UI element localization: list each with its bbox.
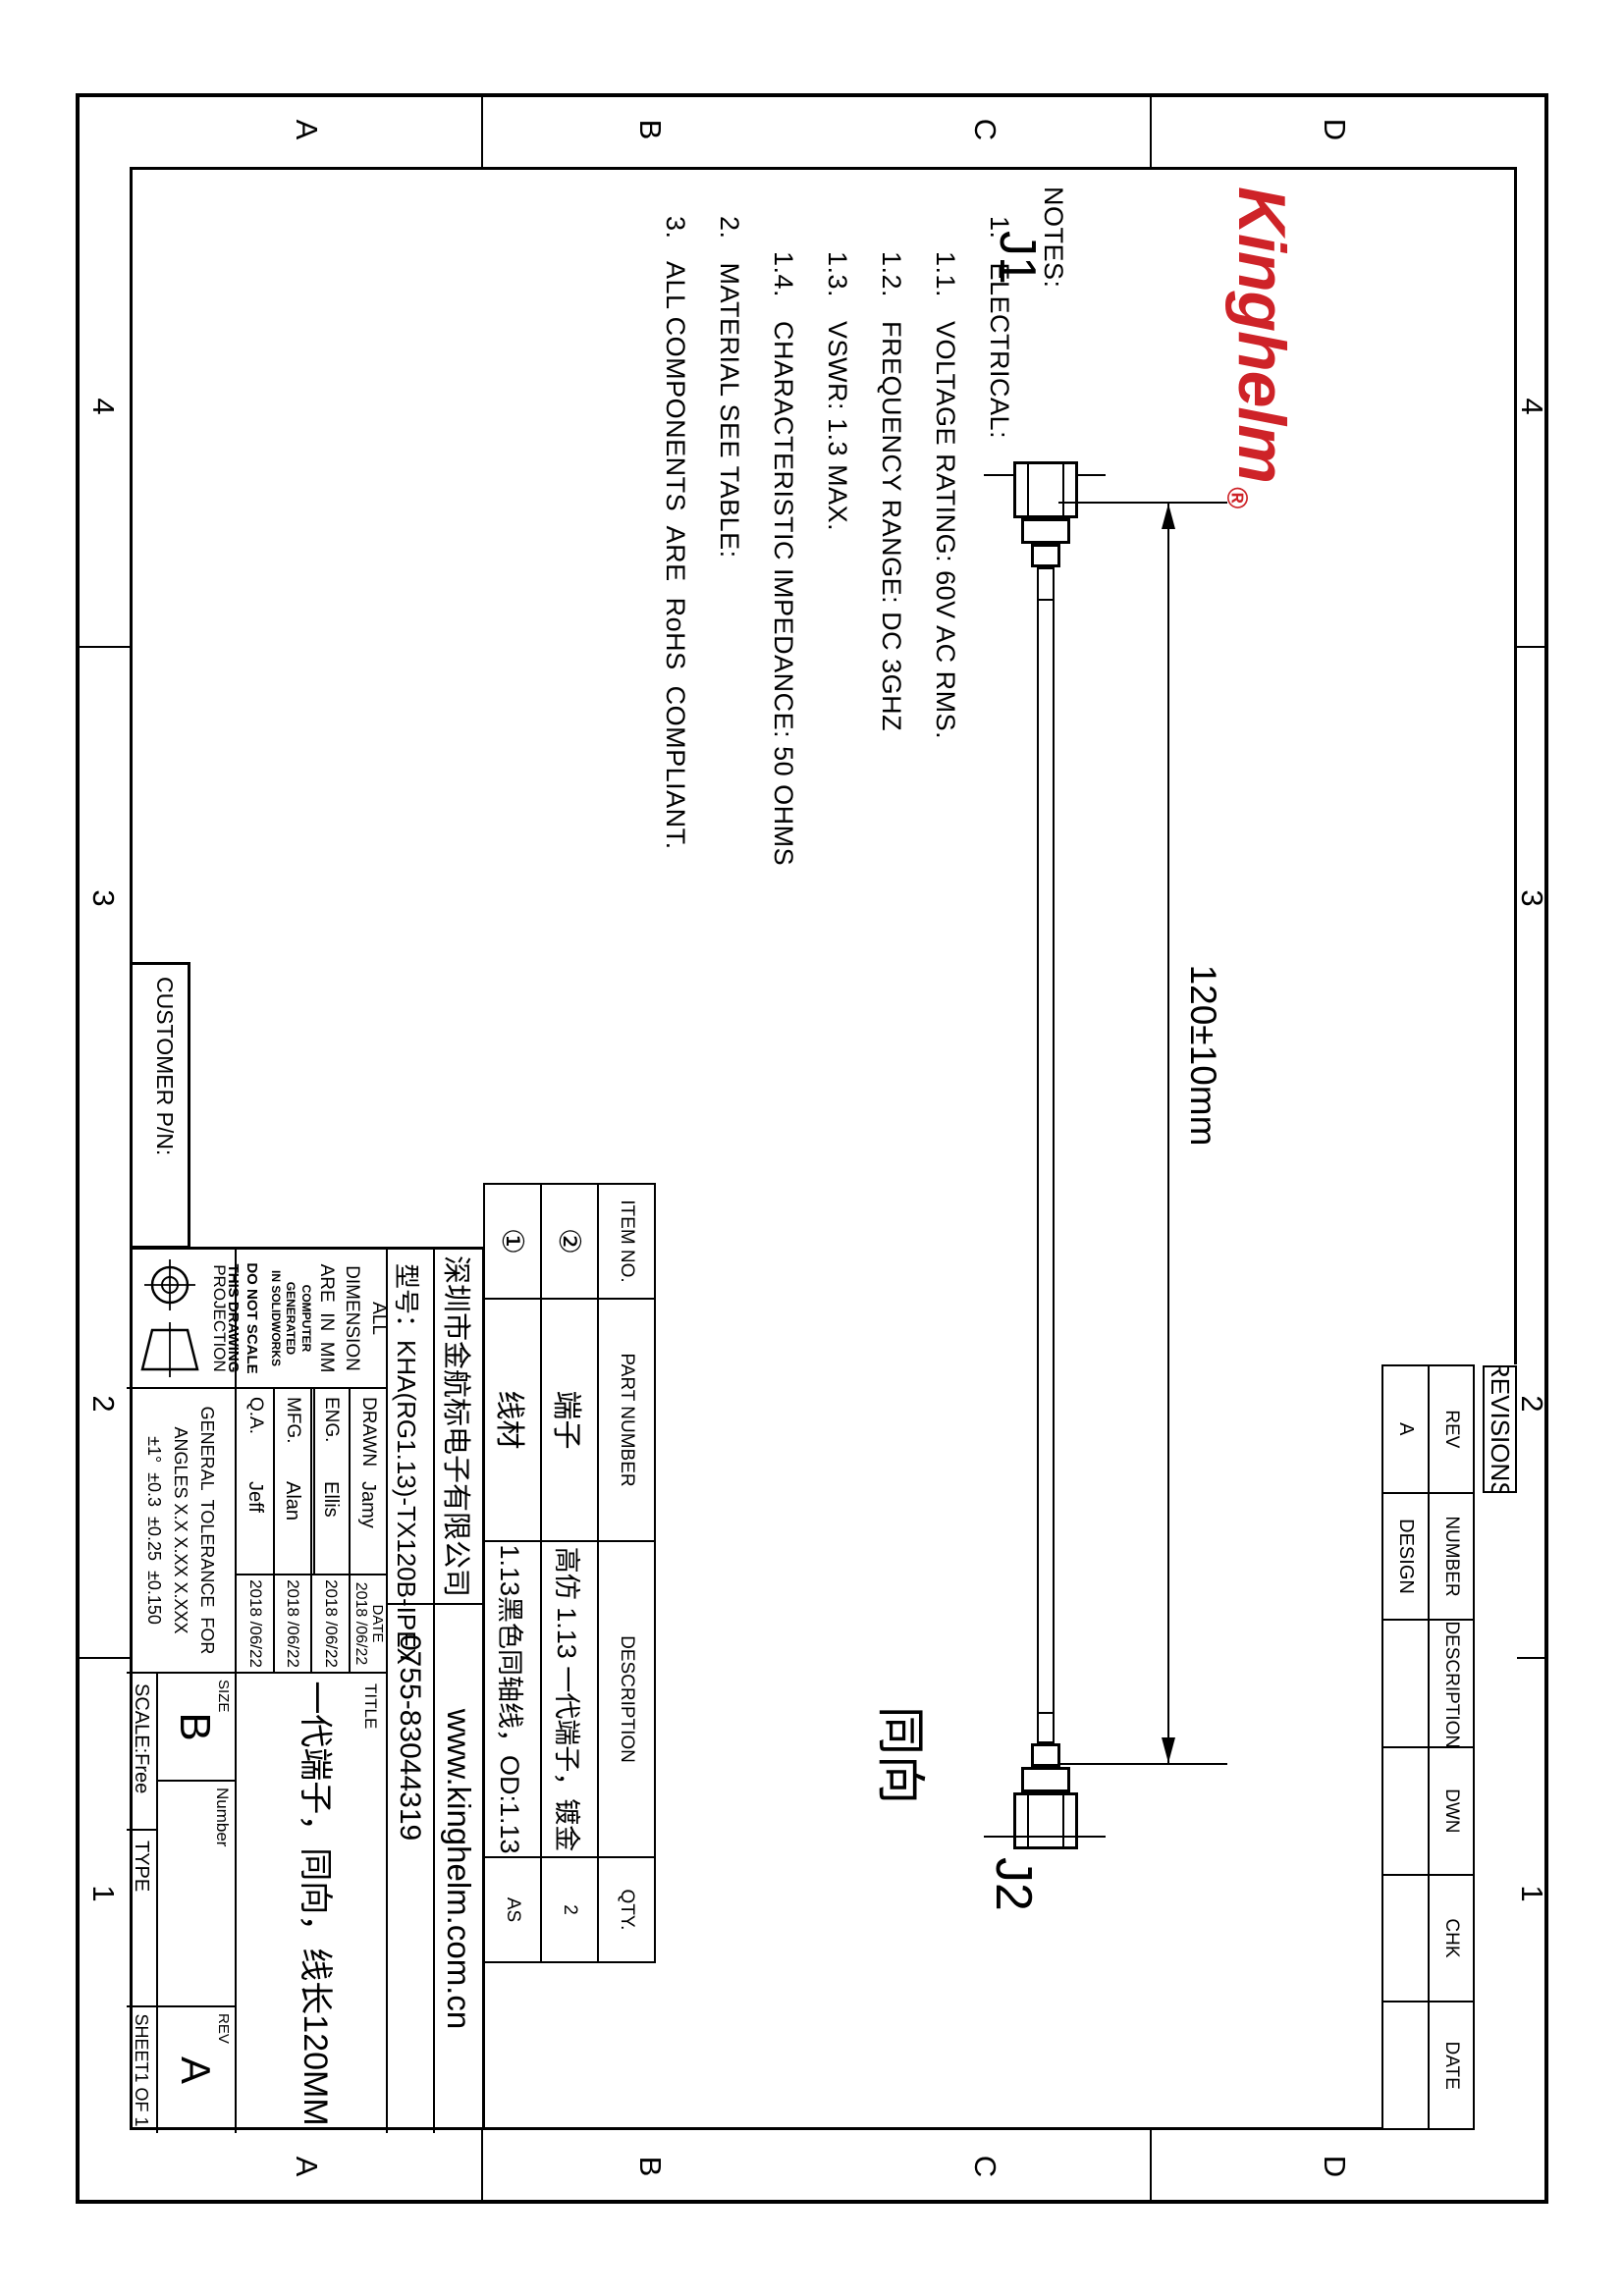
j1-connector-head xyxy=(1013,461,1078,518)
zone-number-bottom: 3 xyxy=(83,869,123,928)
connector-j2-label: J2 xyxy=(984,1857,1043,1911)
company-website: www.kinghelm.com.cn xyxy=(435,1605,482,2133)
zone-number-bottom: 1 xyxy=(83,1864,123,1923)
customer-pn-box: CUSTOMER P/N: xyxy=(130,962,190,1249)
j2-connector-head xyxy=(1013,1792,1078,1849)
revisions-header-number: NUMBER xyxy=(1429,1493,1474,1621)
j2-centerline xyxy=(984,1836,1106,1838)
zone-number-bottom: 4 xyxy=(83,377,123,436)
bom-part-number: 线材 xyxy=(484,1299,541,1541)
approval-role: ENG. xyxy=(320,1389,342,1481)
approval-name: Ellis xyxy=(320,1481,343,1518)
zone-number-top: 4 xyxy=(1512,377,1551,436)
frame-line xyxy=(76,646,132,648)
rev-value: A xyxy=(172,2007,219,2133)
date-header: DATE xyxy=(369,1575,386,1672)
approval-row-mfg: MFG. Alan xyxy=(275,1389,310,1574)
type-cell: TYPE xyxy=(130,1841,152,1892)
zone-number-bottom: 2 xyxy=(83,1374,123,1433)
dimension-line xyxy=(1167,503,1169,1765)
sheet-cell: SHEET1 OF 1 xyxy=(127,2007,156,2133)
revision-description xyxy=(1382,1620,1429,1747)
approval-role: DRAWN xyxy=(357,1389,379,1481)
note-line: 1.2. FREQUENCY RANGE: DC 3GHZ xyxy=(876,187,906,1148)
approval-name: Alan xyxy=(282,1481,304,1521)
drawing-sheet: 4 3 2 1 4 3 2 1 D C B A D C B A Kinghelm… xyxy=(0,0,1624,2296)
size-cell: SIZE B xyxy=(158,1674,235,1780)
revisions-header-chk: CHK xyxy=(1429,1875,1474,2002)
j1-head-detail xyxy=(1062,463,1064,516)
bom-table: ITEM NO. PART NUMBER DESCRIPTION QTY. ② … xyxy=(483,1183,656,1963)
revisions-table: REVISIONS REV NUMBER DESCRIPTION DWN CHK… xyxy=(1381,1364,1517,2130)
j1-head-detail xyxy=(1027,463,1029,516)
logo-text: Kinghelm xyxy=(1224,187,1299,483)
kinghelm-logo: Kinghelm® xyxy=(1223,187,1300,507)
title-cell: TITLE 一代端子，同向，线长120MM xyxy=(237,1674,386,2133)
zone-letter-left: A xyxy=(287,100,326,159)
model-number: 型号：KHA(RG1.13)-TX120B-IPEX xyxy=(390,1263,426,1665)
frame-line xyxy=(481,2128,483,2204)
dimension-label: 120±10mm xyxy=(1182,844,1223,1266)
j2-connector-neck xyxy=(1021,1767,1070,1792)
company-name: 深圳市金航标电子有限公司 xyxy=(435,1250,482,1603)
zone-letter-left: C xyxy=(965,100,1004,159)
drawing-title: 一代端子，同向，线长120MM xyxy=(295,1674,343,2133)
cable-jacket-line xyxy=(1037,599,1055,601)
zone-letter-left: D xyxy=(1315,100,1354,159)
scale-cell: SCALE:Free xyxy=(130,1683,152,1793)
revisions-header-rev: REV xyxy=(1429,1365,1474,1493)
revision-chk xyxy=(1382,1875,1429,2002)
zone-letter-right: B xyxy=(630,2137,670,2196)
approval-row-eng: ENG. Ellis xyxy=(313,1389,349,1574)
third-angle-projection-icon xyxy=(138,1254,201,1383)
screenshot-canvas: 4 3 2 1 4 3 2 1 D C B A D C B A Kinghelm… xyxy=(0,0,1624,2296)
bom-part-number: 端子 xyxy=(541,1299,598,1541)
approval-role: Q.A. xyxy=(244,1389,266,1481)
projection-label: PROJECTION xyxy=(209,1250,229,1387)
approval-date: 2018 /06/22 xyxy=(352,1575,369,1672)
zone-number-top: 1 xyxy=(1512,1864,1551,1923)
approval-name: Jeff xyxy=(244,1481,267,1513)
dimension-arrow-left-icon xyxy=(1162,504,1175,529)
note-line: 1.3. VSWR: 1.3 MAX. xyxy=(822,187,852,1148)
extension-line xyxy=(1058,1763,1227,1765)
zone-letter-right: A xyxy=(287,2137,326,2196)
approval-date-mfg: 2018 /06/22 xyxy=(275,1575,310,1672)
approval-date-drawn: DATE 2018 /06/22 xyxy=(351,1575,386,1672)
bom-header-qty: QTY. xyxy=(598,1857,655,1962)
approval-name: Jamy xyxy=(357,1481,380,1528)
frame-line xyxy=(481,93,483,169)
approval-date-qa: 2018 /06/22 xyxy=(238,1575,273,1672)
j1-connector-ferrule xyxy=(1031,544,1060,567)
revisions-header-dwn: DWN xyxy=(1429,1747,1474,1875)
note-line: 1.1. VOLTAGE RATING: 60V AC RMS. xyxy=(930,187,960,1148)
direction-note: 同向 xyxy=(869,1706,940,1804)
note-line: 1. ELECTRICAL: xyxy=(984,187,1014,1148)
bom-item-no: ② xyxy=(541,1184,598,1299)
dimension-arrow-right-icon xyxy=(1162,1737,1175,1763)
solidworks-note: COMPUTER GENERATED IN SOLIDWORKS DO NOT … xyxy=(223,1250,313,1387)
frame-line xyxy=(1150,93,1152,169)
title-block: 深圳市金航标电子有限公司 www.kinghelm.com.cn 型号：KHA(… xyxy=(130,1247,485,2130)
projection-cell: PROJECTION xyxy=(127,1250,235,1387)
zone-number-top: 2 xyxy=(1512,1374,1551,1433)
cable-jacket-line xyxy=(1037,1712,1055,1714)
frame-line xyxy=(76,1657,132,1659)
general-tolerance-note: GENERAL TOLERANCE FOR ANGLES X.X X.XX X.… xyxy=(127,1389,235,1672)
approval-row-qa: Q.A. Jeff xyxy=(238,1389,273,1574)
revision-number: DESIGN xyxy=(1382,1493,1429,1621)
approval-row-drawn: DRAWN Jamy xyxy=(351,1389,386,1574)
revisions-title: REVISIONS xyxy=(1483,1365,1517,1493)
bom-description: 高仿 1.13 一代端子，镀金 xyxy=(541,1541,598,1857)
units-note: ALL DIMENSION ARE IN MM xyxy=(317,1250,386,1387)
number-cell: Number xyxy=(158,1782,235,2005)
tb-line xyxy=(310,1389,312,1672)
revisions-header-date: DATE xyxy=(1429,2002,1474,2129)
approval-role: MFG. xyxy=(282,1389,303,1481)
zone-letter-right: C xyxy=(965,2137,1004,2196)
j2-head-detail xyxy=(1027,1794,1029,1847)
cable-body xyxy=(1037,567,1055,1743)
bom-qty: 2 xyxy=(541,1857,598,1962)
revision-rev: A xyxy=(1382,1365,1429,1493)
frame-line xyxy=(1515,1657,1548,1659)
bom-header-item: ITEM NO. xyxy=(598,1184,655,1299)
extension-line xyxy=(1058,502,1227,504)
note-line: 2. MATERIAL SEE TABLE: xyxy=(714,187,744,1148)
j2-head-detail xyxy=(1062,1794,1064,1847)
connector-j1-label: J1 xyxy=(988,231,1047,285)
notes-block: NOTES: 1. ELECTRICAL: 1.1. VOLTAGE RATIN… xyxy=(636,187,1068,1148)
approval-date-eng: 2018 /06/22 xyxy=(313,1575,349,1672)
revision-date xyxy=(1382,2002,1429,2129)
j2-connector-ferrule xyxy=(1031,1743,1060,1767)
bom-header-part: PART NUMBER xyxy=(598,1299,655,1541)
revision-dwn xyxy=(1382,1747,1429,1875)
size-value: B xyxy=(170,1674,219,1780)
title-label: TITLE xyxy=(360,1674,386,2133)
zone-letter-right: D xyxy=(1315,2137,1354,2196)
company-phone: 0755-83044319 xyxy=(393,1634,426,1841)
note-line: 3. ALL COMPONENTS ARE RoHS COMPLIANT. xyxy=(660,187,690,1148)
registered-mark-icon: ® xyxy=(1219,487,1253,507)
tb-line xyxy=(127,1829,158,1831)
bom-description: 1.13黑色同轴线，OD:1.13 xyxy=(484,1541,541,1857)
rev-cell: REV A xyxy=(158,2007,235,2133)
bom-header-desc: DESCRIPTION xyxy=(598,1541,655,1857)
frame-line xyxy=(1150,2128,1152,2204)
bom-qty: AS xyxy=(484,1857,541,1962)
j1-connector-neck xyxy=(1021,518,1070,544)
number-label: Number xyxy=(212,1782,235,2005)
revisions-header-description: DESCRIPTION xyxy=(1429,1620,1474,1747)
bom-item-no: ① xyxy=(484,1184,541,1299)
zone-number-top: 3 xyxy=(1512,869,1551,928)
note-line: 1.4. CHARACTERISTIC IMPEDANCE: 50 OHMS xyxy=(768,187,798,1148)
computer-generated-note: COMPUTER GENERATED IN SOLIDWORKS xyxy=(267,1250,313,1387)
zone-letter-left: B xyxy=(630,100,670,159)
customer-pn-label: CUSTOMER P/N: xyxy=(151,965,188,1246)
frame-line xyxy=(1515,646,1548,648)
